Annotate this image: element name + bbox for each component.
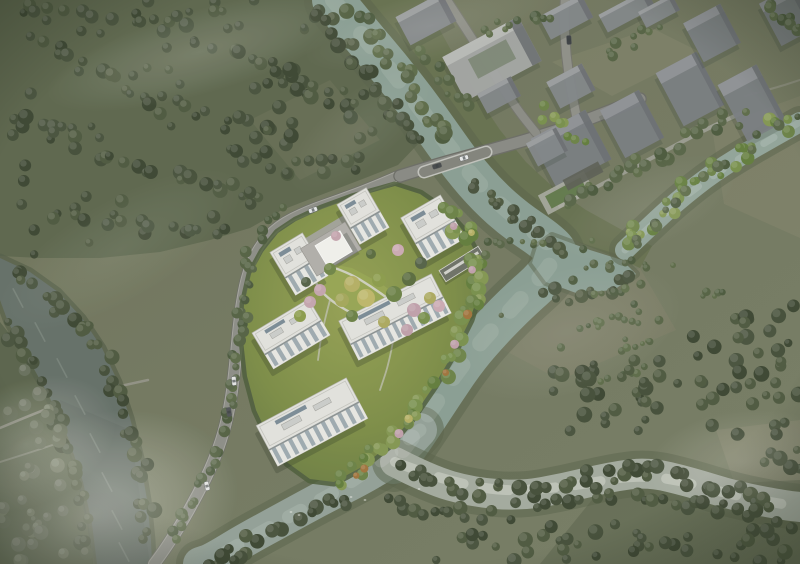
rendering-canvas — [0, 0, 800, 564]
haze-and-vignette — [0, 0, 800, 564]
aerial-site-rendering — [0, 0, 800, 564]
